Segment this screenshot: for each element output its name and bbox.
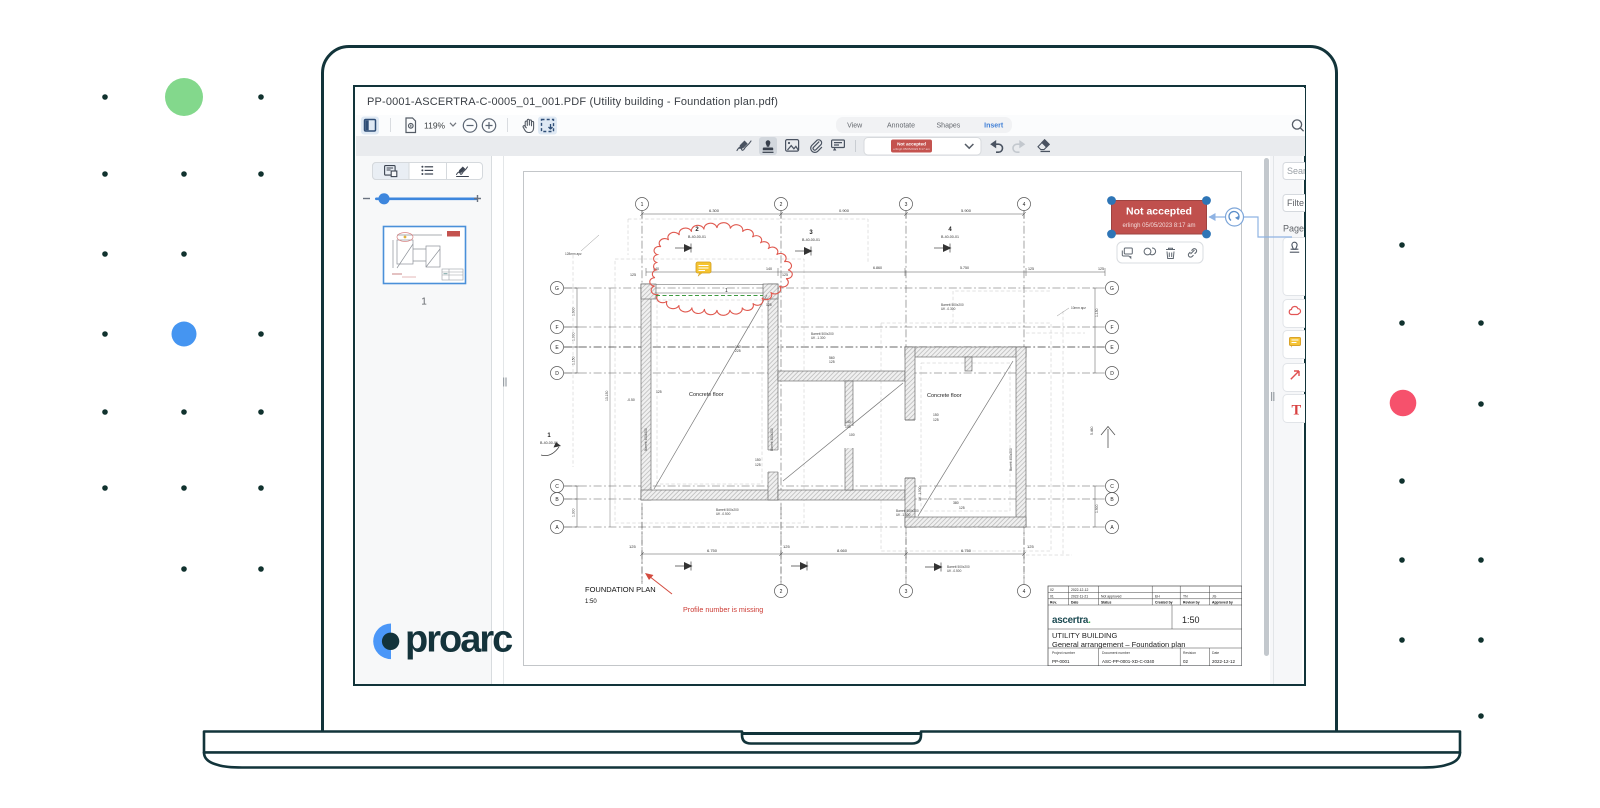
svg-text:Approved by: Approved by <box>1212 601 1233 605</box>
svg-text:125: 125 <box>755 463 761 467</box>
svg-text:1.900: 1.900 <box>1095 504 1099 513</box>
svg-text:125: 125 <box>1027 544 1034 549</box>
svg-text:Not accepted: Not accepted <box>897 141 926 146</box>
svg-text:10mm apz: 10mm apz <box>1071 306 1086 310</box>
svg-text:0.900: 0.900 <box>839 208 850 213</box>
svg-text:PP-0001: PP-0001 <box>1052 659 1070 664</box>
svg-text:Barrett 400x200: Barrett 400x200 <box>770 428 774 451</box>
svg-text:125: 125 <box>783 544 790 549</box>
svg-text:128mm apz: 128mm apz <box>565 252 582 256</box>
svg-text:100: 100 <box>849 433 855 437</box>
svg-text:1.300: 1.300 <box>572 508 576 517</box>
svg-text:TN: TN <box>1183 594 1188 598</box>
svg-text:5.750: 5.750 <box>960 266 969 270</box>
svg-text:140: 140 <box>845 420 851 424</box>
svg-text:125: 125 <box>629 544 636 549</box>
svg-text:D: D <box>1110 371 1114 377</box>
svg-text:8.660: 8.660 <box>837 548 848 553</box>
svg-text:1:50: 1:50 <box>585 599 597 605</box>
svg-text:EH: EH <box>1155 594 1160 598</box>
svg-text:1.000: 1.000 <box>572 332 576 341</box>
svg-text:Project number: Project number <box>1052 651 1076 655</box>
svg-text:Concrete floor: Concrete floor <box>689 392 724 398</box>
svg-text:UK -0.300: UK -0.300 <box>941 307 956 311</box>
svg-text:100: 100 <box>845 425 851 429</box>
svg-text:3: 3 <box>809 230 813 236</box>
svg-text:Revision: Revision <box>1183 651 1196 655</box>
svg-text:1: 1 <box>725 288 728 294</box>
svg-text:UK -0.500: UK -0.500 <box>716 512 731 516</box>
svg-text:Date: Date <box>1212 651 1219 655</box>
svg-text:6.300: 6.300 <box>709 208 720 213</box>
svg-text:6.860: 6.860 <box>873 266 882 270</box>
svg-text:UK -1.500: UK -1.500 <box>896 513 911 517</box>
svg-text:UK -1.500: UK -1.500 <box>918 486 922 501</box>
svg-text:Not accepted: Not accepted <box>1126 206 1192 218</box>
svg-text:150: 150 <box>933 413 939 417</box>
svg-text:1.150: 1.150 <box>572 356 576 365</box>
svg-text:125: 125 <box>933 418 939 422</box>
svg-text:5.460: 5.460 <box>1090 426 1094 435</box>
svg-text:General arrangement – Foundati: General arrangement – Foundation plan <box>1052 640 1185 649</box>
svg-text:B-40-00-01: B-40-00-01 <box>688 235 706 239</box>
svg-text:140: 140 <box>766 267 772 271</box>
svg-text:125: 125 <box>829 360 835 364</box>
svg-text:2022-11-21: 2022-11-21 <box>1071 594 1088 598</box>
svg-text:erlingh 05/05/2023 8:17 am: erlingh 05/05/2023 8:17 am <box>1122 223 1195 229</box>
svg-text:125: 125 <box>959 506 965 510</box>
svg-text:1: 1 <box>641 202 644 208</box>
svg-text:Date: Date <box>1071 601 1078 605</box>
svg-text:2: 2 <box>780 589 783 595</box>
svg-text:225: 225 <box>735 349 741 353</box>
svg-text:Document number: Document number <box>1102 651 1131 655</box>
svg-text:4: 4 <box>1023 589 1026 595</box>
svg-text:Insert: Insert <box>984 123 1004 130</box>
svg-text:ascertra.: ascertra. <box>1052 615 1091 626</box>
svg-text:erlingh 05/05/2023 8:17 am: erlingh 05/05/2023 8:17 am <box>893 147 930 151</box>
svg-text:Review by: Review by <box>1183 601 1200 605</box>
svg-text:125: 125 <box>766 303 772 307</box>
svg-text:B-40-00-01: B-40-00-01 <box>941 235 959 239</box>
svg-text:ASC-PP-0001-XD-C-0340: ASC-PP-0001-XD-C-0340 <box>1102 659 1155 664</box>
svg-text:Searc: Searc <box>1287 166 1305 176</box>
svg-text:UK -0.500: UK -0.500 <box>947 569 962 573</box>
svg-text:01: 01 <box>1050 594 1054 598</box>
svg-text:13.150: 13.150 <box>605 391 609 401</box>
svg-text:F: F <box>555 325 558 331</box>
svg-text:2: 2 <box>780 202 783 208</box>
svg-text:View: View <box>847 123 863 130</box>
svg-text:4: 4 <box>1023 202 1026 208</box>
svg-text:JG: JG <box>1212 594 1217 598</box>
svg-text:150: 150 <box>755 458 761 462</box>
svg-text:B-40-00-01: B-40-00-01 <box>802 238 820 242</box>
svg-text:2: 2 <box>695 227 699 233</box>
svg-text:Barrett 400x200: Barrett 400x200 <box>1009 448 1013 471</box>
svg-text:D: D <box>555 371 559 377</box>
svg-text:02: 02 <box>1183 659 1189 664</box>
svg-text:proarc: proarc <box>405 620 513 661</box>
svg-text:UTILITY BUILDING: UTILITY BUILDING <box>1052 631 1117 640</box>
svg-text:Status: Status <box>1101 601 1111 605</box>
svg-text:C: C <box>555 484 559 490</box>
svg-text:125: 125 <box>630 273 636 277</box>
svg-text:Shapes: Shapes <box>937 123 961 130</box>
svg-text:3: 3 <box>905 202 908 208</box>
svg-text:125: 125 <box>782 273 788 277</box>
svg-text:Not approved: Not approved <box>1101 594 1121 598</box>
svg-text:F: F <box>1110 325 1113 331</box>
svg-text:1:50: 1:50 <box>1182 615 1200 625</box>
svg-text:-0.50: -0.50 <box>627 398 635 402</box>
svg-text:1: 1 <box>547 433 551 439</box>
svg-text:125: 125 <box>1028 267 1034 271</box>
svg-text:Created by: Created by <box>1155 601 1173 605</box>
svg-text:Rev.: Rev. <box>1050 601 1057 605</box>
svg-text:2022-12-12: 2022-12-12 <box>1071 588 1088 592</box>
svg-text:Barrett 400x200: Barrett 400x200 <box>644 428 648 451</box>
svg-text:4: 4 <box>948 227 952 233</box>
svg-text:G: G <box>1110 286 1114 292</box>
svg-text:Annotate: Annotate <box>887 123 915 130</box>
svg-text:G: G <box>555 286 559 292</box>
svg-text:Profile number is missing: Profile number is missing <box>683 605 763 614</box>
svg-text:T: T <box>1292 403 1302 419</box>
svg-text:FOUNDATION PLAN: FOUNDATION PLAN <box>585 585 656 594</box>
svg-text:125: 125 <box>656 390 662 394</box>
svg-text:2022-12-12: 2022-12-12 <box>1212 659 1236 664</box>
svg-text:1.150: 1.150 <box>1095 308 1099 317</box>
svg-text:6.750: 6.750 <box>707 548 718 553</box>
svg-text:5.900: 5.900 <box>961 208 972 213</box>
svg-text:UK -1.300: UK -1.300 <box>811 336 826 340</box>
svg-text:Concrete floor: Concrete floor <box>927 393 962 399</box>
svg-text:3: 3 <box>905 589 908 595</box>
svg-text:119%: 119% <box>424 121 446 131</box>
svg-text:C: C <box>1110 484 1114 490</box>
svg-text:6.750: 6.750 <box>961 548 972 553</box>
svg-text:1: 1 <box>421 297 427 308</box>
svg-text:02: 02 <box>1050 588 1054 592</box>
svg-text:1.900: 1.900 <box>572 307 576 316</box>
svg-text:380: 380 <box>953 501 959 505</box>
